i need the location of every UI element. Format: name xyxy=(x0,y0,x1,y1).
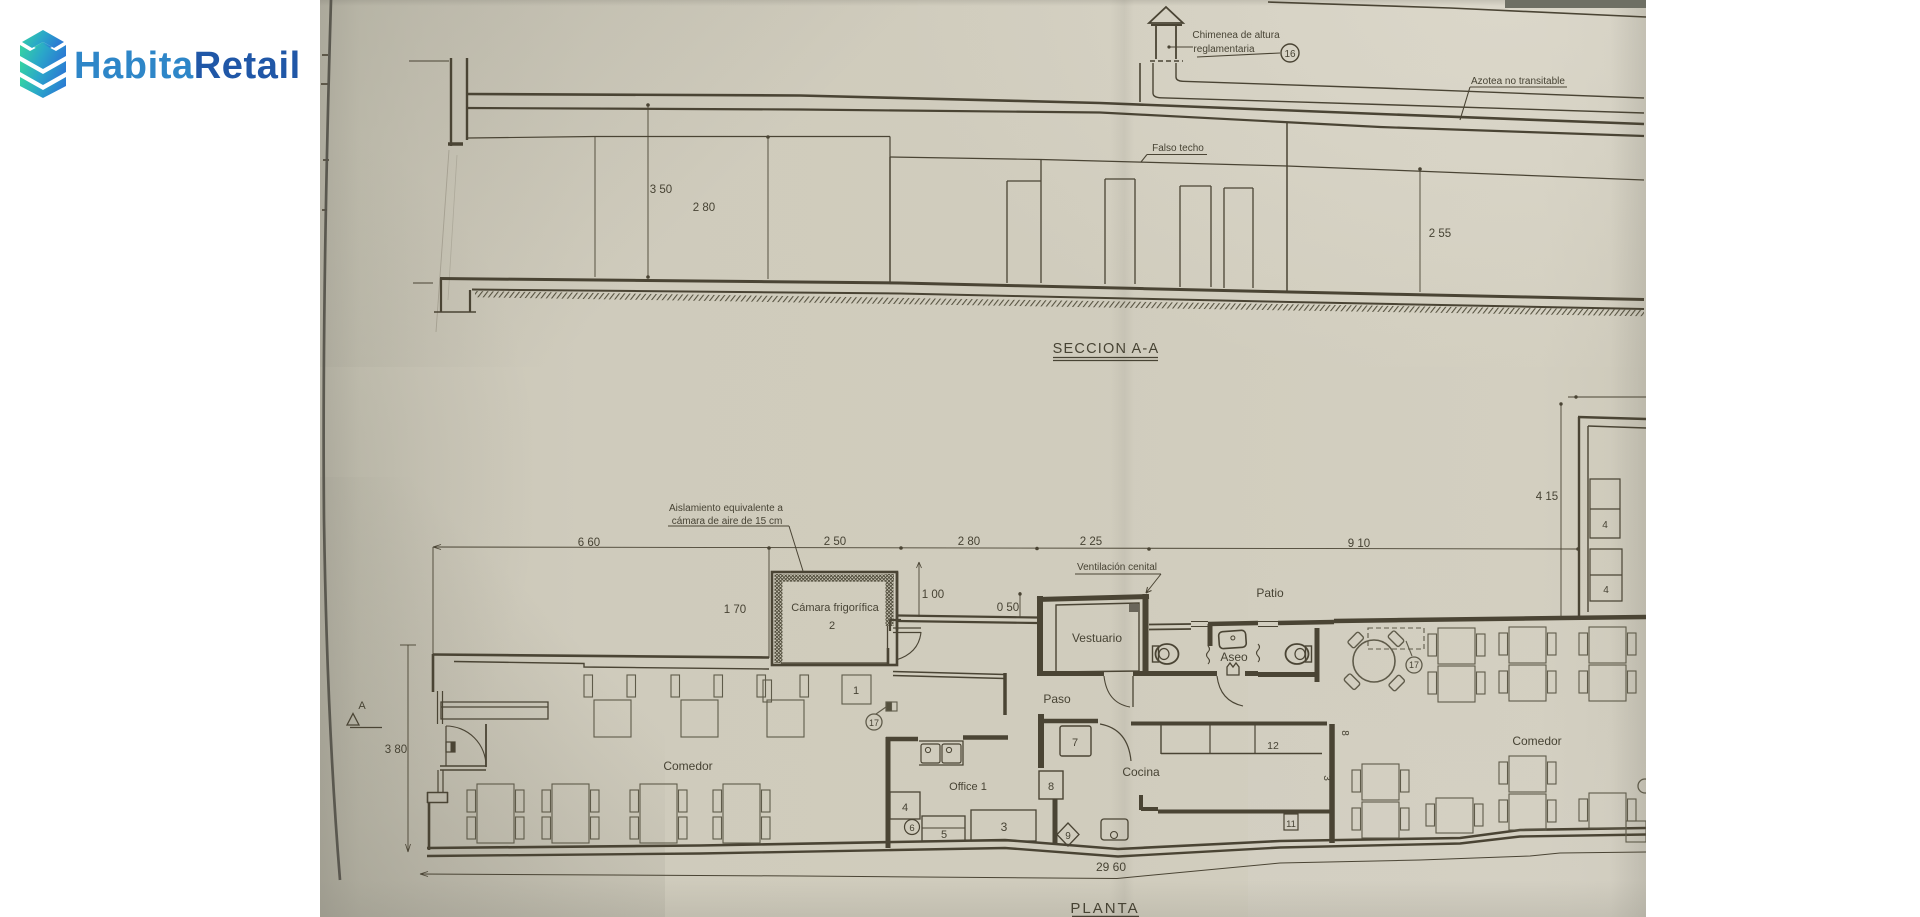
svg-text:Cámara frigorífica: Cámara frigorífica xyxy=(791,602,879,614)
svg-text:4 15: 4 15 xyxy=(1536,491,1558,503)
svg-text:3: 3 xyxy=(1001,820,1008,834)
svg-text:5: 5 xyxy=(941,829,947,841)
svg-text:2 55: 2 55 xyxy=(1429,228,1451,240)
svg-text:Comedor: Comedor xyxy=(1512,734,1561,748)
svg-text:cámara de aire de 15 cm: cámara de aire de 15 cm xyxy=(672,516,783,527)
svg-text:8: 8 xyxy=(1048,781,1054,793)
svg-text:2 50: 2 50 xyxy=(824,536,846,548)
svg-text:2 25: 2 25 xyxy=(1080,536,1102,548)
svg-text:3 50: 3 50 xyxy=(650,184,672,196)
svg-text:7: 7 xyxy=(1072,737,1078,749)
svg-text:Cocina: Cocina xyxy=(1122,765,1160,779)
svg-text:6 60: 6 60 xyxy=(578,537,600,549)
svg-text:11: 11 xyxy=(1286,819,1296,830)
svg-text:reglamentaria: reglamentaria xyxy=(1193,44,1255,55)
svg-text:6: 6 xyxy=(909,823,914,834)
svg-text:Comedor: Comedor xyxy=(663,759,712,773)
svg-text:SECCION A-A: SECCION A-A xyxy=(1053,341,1160,357)
svg-text:4: 4 xyxy=(1602,520,1608,531)
svg-text:Aseo: Aseo xyxy=(1220,650,1248,664)
svg-text:4: 4 xyxy=(1603,585,1609,596)
svg-text:Ventilación cenital: Ventilación cenital xyxy=(1077,562,1157,573)
svg-text:Paso: Paso xyxy=(1043,692,1071,706)
svg-text:3 80: 3 80 xyxy=(385,744,407,756)
svg-text:Azotea no transitable: Azotea no transitable xyxy=(1471,76,1565,87)
svg-text:0 50: 0 50 xyxy=(997,602,1019,614)
svg-text:2 80: 2 80 xyxy=(693,202,715,214)
svg-text:9: 9 xyxy=(1065,831,1071,842)
svg-text:9 10: 9 10 xyxy=(1348,538,1370,550)
svg-text:4: 4 xyxy=(902,802,908,814)
svg-text:Office 1: Office 1 xyxy=(949,781,987,793)
svg-text:1: 1 xyxy=(853,685,859,697)
svg-text:Falso techo: Falso techo xyxy=(1152,143,1204,154)
svg-text:2: 2 xyxy=(829,620,835,632)
svg-text:12: 12 xyxy=(1267,740,1279,752)
svg-text:17: 17 xyxy=(1409,660,1419,670)
svg-text:3: 3 xyxy=(1321,775,1332,781)
svg-text:1 00: 1 00 xyxy=(922,589,944,601)
svg-text:Patio: Patio xyxy=(1256,586,1284,600)
svg-text:Chimenea de altura: Chimenea de altura xyxy=(1192,30,1280,41)
svg-text:A: A xyxy=(358,700,366,712)
svg-text:16: 16 xyxy=(1284,49,1296,60)
svg-text:17: 17 xyxy=(869,718,879,728)
svg-text:2 80: 2 80 xyxy=(958,536,980,548)
svg-text:29 60: 29 60 xyxy=(1096,860,1126,874)
svg-text:Vestuario: Vestuario xyxy=(1072,631,1122,645)
svg-text:1 70: 1 70 xyxy=(724,604,746,616)
svg-text:8: 8 xyxy=(1339,730,1350,736)
svg-text:Aislamiento equivalente a: Aislamiento equivalente a xyxy=(669,503,783,514)
svg-text:PLANTA: PLANTA xyxy=(1070,900,1139,917)
